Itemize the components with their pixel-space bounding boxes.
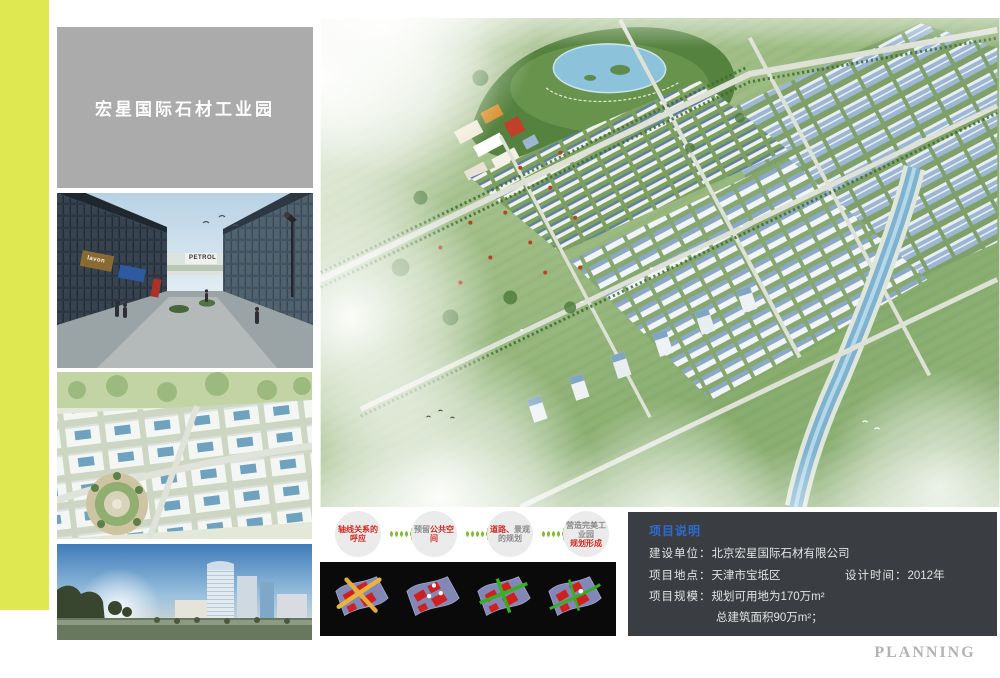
- floor-area-value: 总建筑面积90万m²；: [716, 612, 823, 624]
- step2-pre: 预留: [414, 525, 430, 534]
- design-time-value: 2012年: [908, 570, 945, 582]
- design-time-label: 设计时间：: [845, 570, 908, 582]
- diagram-tile-nodes: [402, 571, 464, 627]
- diagram-tile-axes: [331, 571, 393, 627]
- street-photo-art: [57, 193, 313, 368]
- process-arrow-3: [541, 529, 563, 539]
- planning-watermark: PLANNING: [860, 644, 990, 662]
- process-step-2: 预留公共空间: [411, 511, 457, 557]
- builder-label: 建设单位：: [649, 548, 712, 560]
- info-row-builder: 建设单位：北京宏星国际石材有限公司: [649, 545, 850, 561]
- sign-petrol: PETROL: [189, 255, 216, 261]
- lake: [553, 44, 665, 93]
- scale-value: 规划可用地为170万m²: [712, 591, 825, 603]
- campus-aerial-art: [57, 372, 312, 539]
- title-panel: 宏星国际石材工业园: [57, 27, 313, 188]
- process-step-4: 营造完美工业园 规划形成: [563, 511, 609, 557]
- circular-plaza: [86, 473, 148, 535]
- location-label: 项目地点：: [649, 570, 712, 582]
- process-step-3: 道路、景观的规划: [487, 511, 533, 557]
- step3-main: 道路、: [490, 525, 514, 534]
- step1-main: 轴线关系的呼应: [338, 525, 378, 543]
- location-value: 天津市宝坻区: [712, 570, 781, 582]
- masterplan-art: [320, 18, 1000, 507]
- project-info-panel: 项目说明 建设单位：北京宏星国际石材有限公司 项目地点：天津市宝坻区 设计时间：…: [628, 512, 997, 636]
- accent-stripe: [0, 0, 49, 610]
- info-panel-header: 项目说明: [649, 522, 701, 539]
- scale-label: 项目规模：: [649, 591, 712, 603]
- info-row-location: 项目地点：天津市宝坻区 设计时间：2012年: [649, 567, 781, 583]
- masterplan-aerial: [320, 18, 1000, 507]
- step4-tail: 营造完美工业园: [566, 521, 606, 539]
- tower-photo-art: [57, 544, 312, 640]
- page-title: 宏星国际石材工业园: [95, 95, 275, 120]
- tower-photo: [57, 544, 312, 640]
- info-row-floor-area: 总建筑面积90万m²；: [716, 609, 823, 625]
- process-arrow-2: [465, 529, 487, 539]
- street-photo: lavon PETROL: [57, 193, 313, 368]
- diagram-tile-final: [544, 571, 606, 627]
- process-step-1: 轴线关系的呼应: [335, 511, 381, 557]
- step4-line2: 规划形成: [570, 539, 602, 548]
- campus-aerial-photo: [57, 372, 312, 539]
- process-arrow-1: [389, 529, 411, 539]
- step2-main: 公共空间: [430, 525, 454, 543]
- builder-value: 北京宏星国际石材有限公司: [712, 548, 850, 560]
- info-row-scale: 项目规模：规划可用地为170万m²: [649, 588, 825, 604]
- diagram-tile-roads: [473, 571, 535, 627]
- concept-diagram-box: [320, 562, 616, 636]
